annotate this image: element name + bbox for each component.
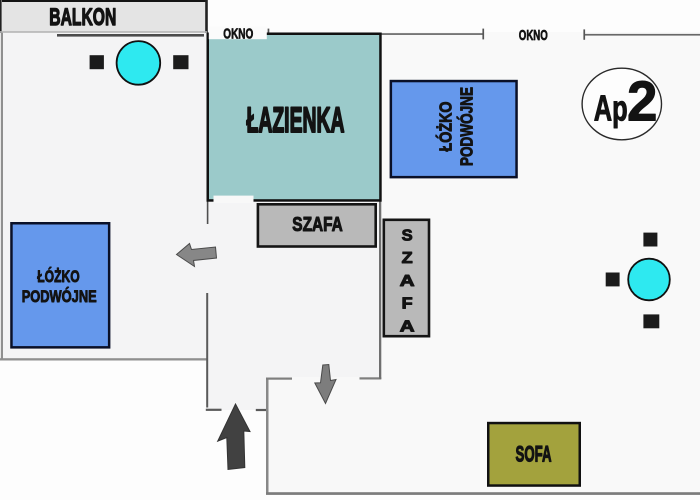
svg-text:Ap: Ap — [594, 87, 628, 128]
svg-text:ŁAZIENKA: ŁAZIENKA — [247, 100, 345, 140]
svg-text:BALKON: BALKON — [49, 4, 116, 31]
svg-text:SZAFA: SZAFA — [292, 214, 343, 236]
svg-text:SOFA: SOFA — [516, 442, 552, 467]
svg-text:2: 2 — [627, 69, 658, 132]
svg-text:OKNO: OKNO — [519, 27, 548, 44]
svg-text:PODWÓJNE: PODWÓJNE — [456, 87, 477, 166]
svg-text:Z: Z — [402, 250, 413, 267]
svg-text:OKNO: OKNO — [223, 26, 253, 43]
svg-text:A: A — [400, 273, 415, 290]
svg-text:ŁÓŻKO: ŁÓŻKO — [37, 267, 80, 286]
svg-text:A: A — [400, 318, 415, 335]
svg-text:PODWÓJNE: PODWÓJNE — [22, 287, 97, 306]
svg-text:F: F — [402, 295, 413, 312]
svg-text:S: S — [402, 227, 413, 244]
svg-text:ŁÓŻKO: ŁÓŻKO — [435, 102, 456, 152]
